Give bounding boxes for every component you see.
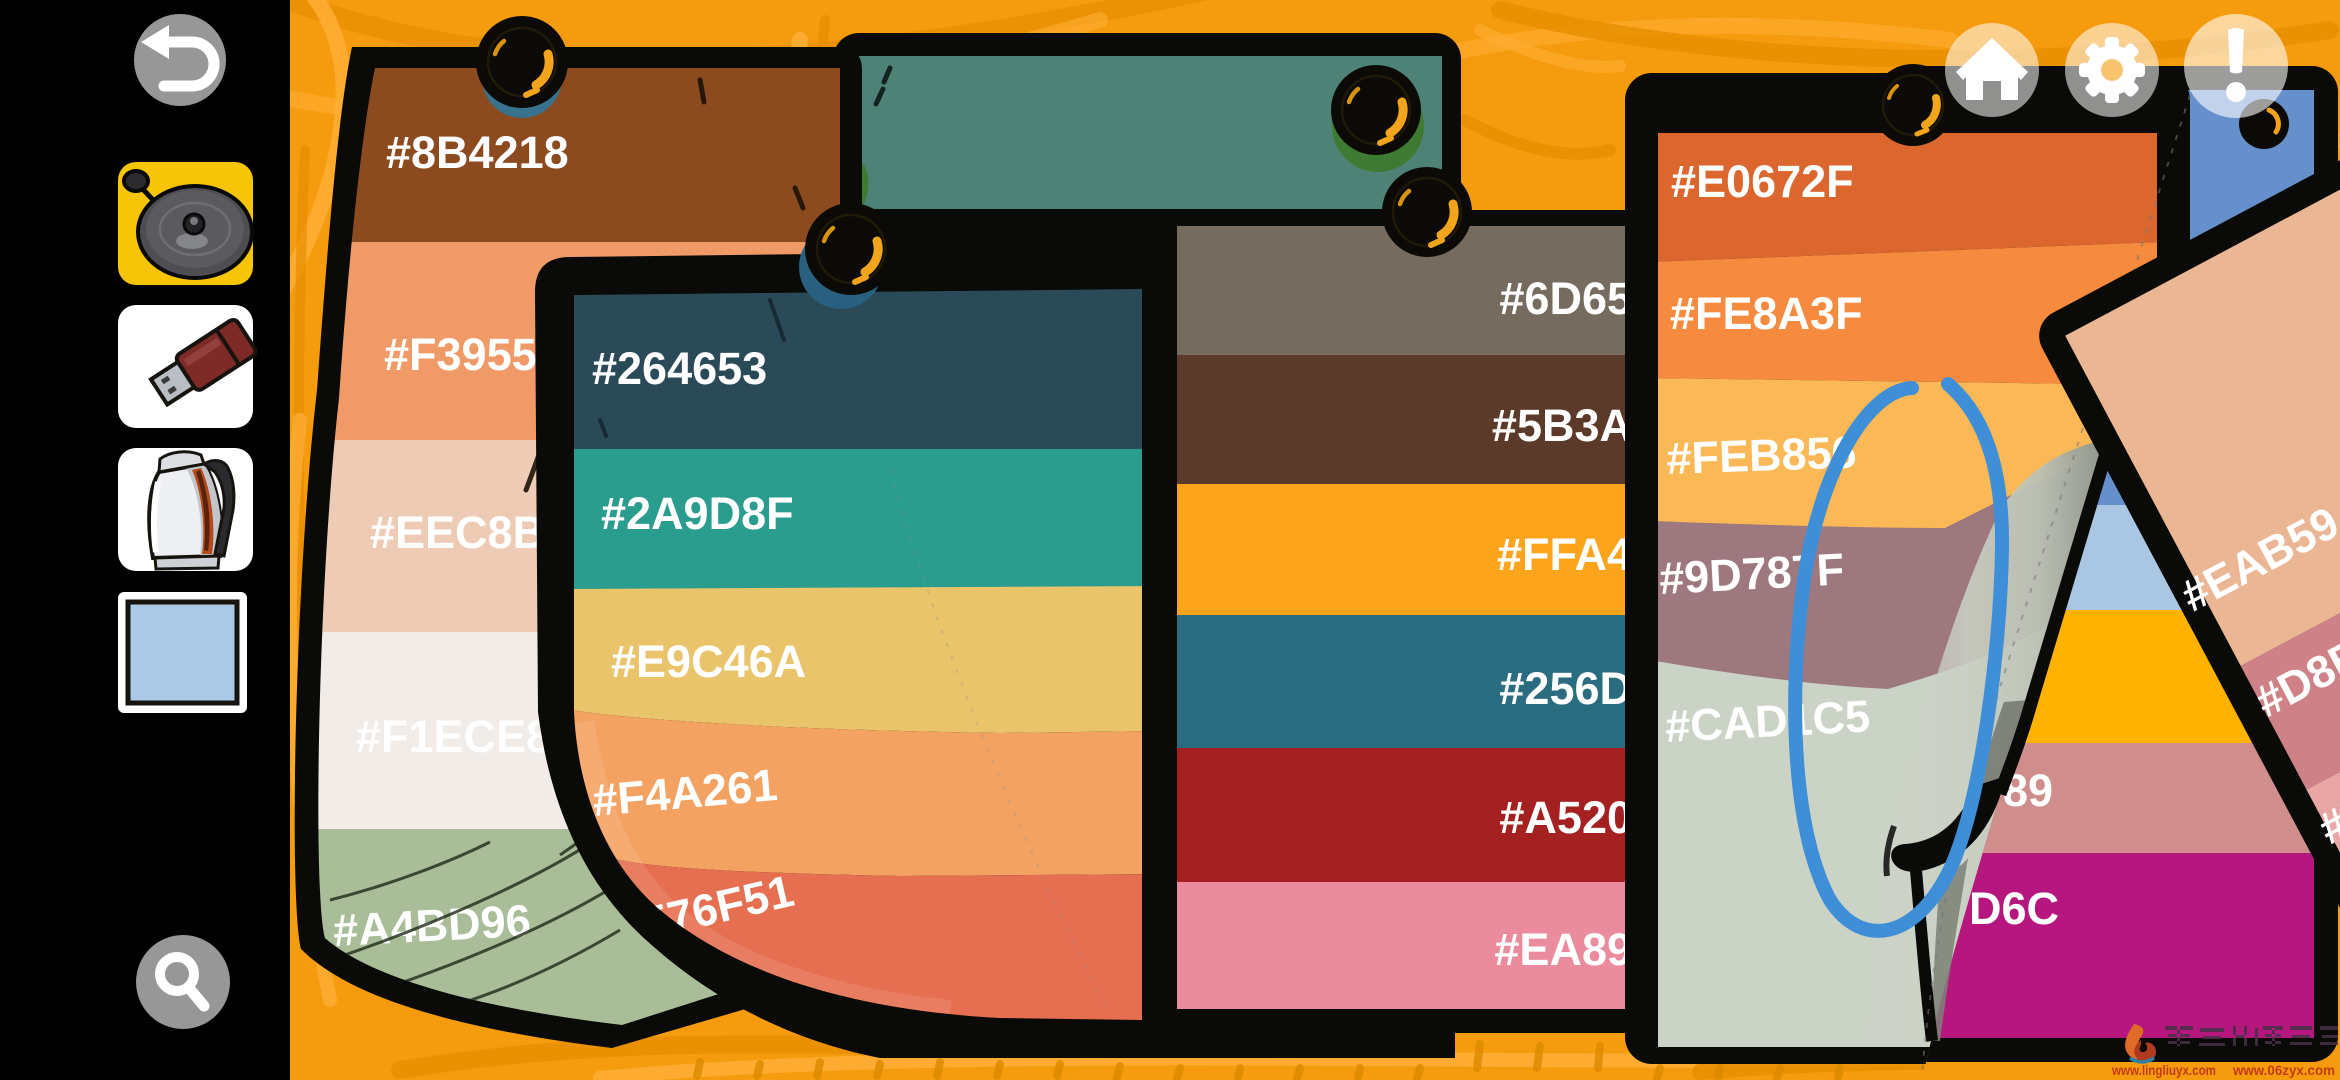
svg-text:#E0672F: #E0672F (1671, 156, 1854, 207)
svg-text:#A4BD96: #A4BD96 (332, 895, 532, 956)
svg-text:#6D65: #6D65 (1499, 273, 1632, 324)
svg-text:#F1ECE8: #F1ECE8 (356, 711, 551, 762)
svg-text:#F39558: #F39558 (384, 329, 562, 380)
svg-text:#5B3A: #5B3A (1492, 400, 1632, 451)
svg-text:#CAD1C5: #CAD1C5 (1664, 690, 1871, 752)
svg-text:#256D: #256D (1499, 663, 1632, 714)
svg-text:#E9C46A: #E9C46A (611, 636, 806, 687)
svg-text:#FE8A3F: #FE8A3F (1670, 288, 1863, 339)
svg-text:#EA89: #EA89 (1494, 924, 1632, 975)
svg-text:#264653: #264653 (592, 343, 767, 394)
svg-text:www.06zyx.com: www.06zyx.com (2232, 1062, 2335, 1078)
svg-text:#2A9D8F: #2A9D8F (601, 488, 794, 539)
svg-text:#8B4218: #8B4218 (386, 127, 569, 178)
svg-text:www.lingliuyx.com: www.lingliuyx.com (2111, 1062, 2216, 1078)
svg-text:#A520: #A520 (1499, 792, 1632, 843)
svg-text:#FFA4: #FFA4 (1497, 529, 1632, 580)
svg-text:#9D787F: #9D787F (1658, 543, 1846, 604)
